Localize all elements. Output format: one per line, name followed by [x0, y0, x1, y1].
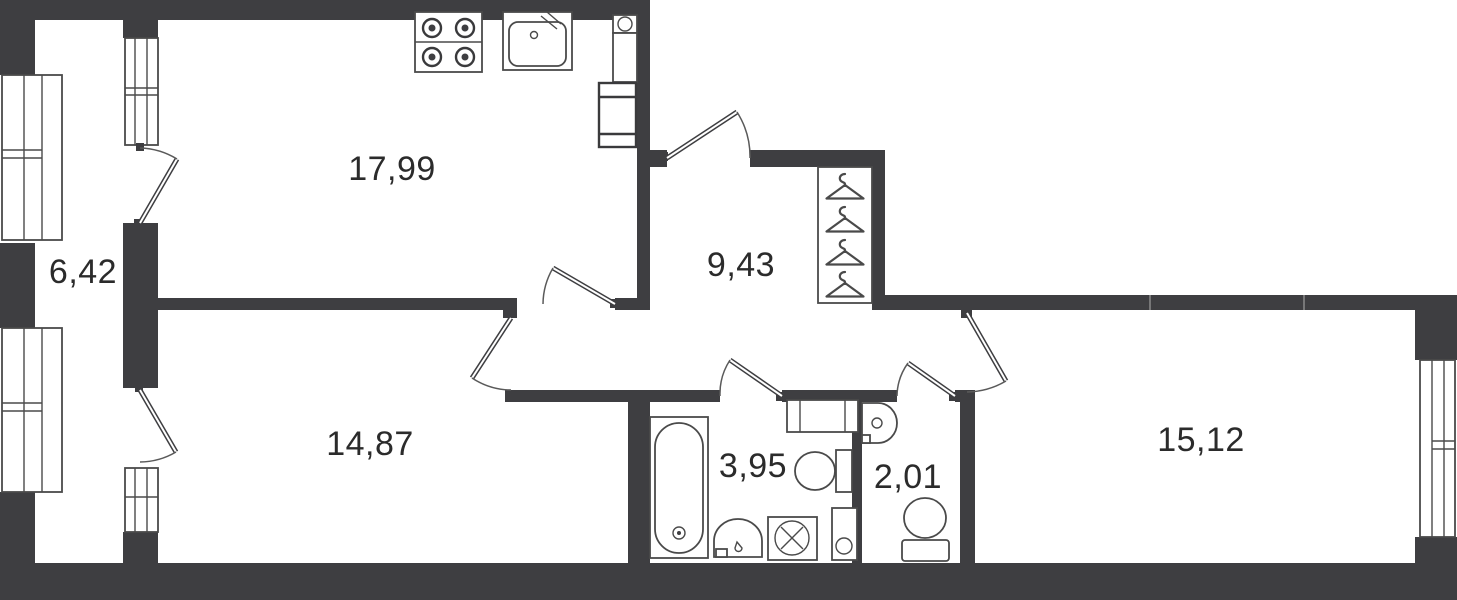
wc-toilet-icon	[902, 498, 949, 561]
wall-kitchen-right	[637, 0, 650, 310]
wall-bottom	[0, 563, 1457, 600]
wall-wardrobe-right	[872, 165, 885, 310]
balcony-window-upper-icon	[2, 75, 62, 240]
entrance-door-icon	[659, 112, 750, 161]
balcony-door-room-left-icon	[135, 384, 176, 462]
floor-plan: 17,99 6,42 9,43 14,87 3,95 2,01 15,12	[0, 0, 1457, 600]
bath-sink-icon	[714, 519, 762, 557]
stove-icon	[415, 12, 482, 72]
washing-machine-icon	[768, 517, 817, 560]
bathroom-door-icon	[720, 360, 785, 401]
label-balcony: 6,42	[49, 253, 117, 291]
label-kitchen-living: 17,99	[348, 150, 436, 188]
wc-sink-icon	[862, 403, 897, 443]
room-left-door-icon	[472, 308, 514, 390]
refrigerator-icon	[599, 83, 636, 147]
balcony-inner-window-lower-icon	[125, 468, 158, 532]
bathroom-fixtures	[650, 417, 857, 560]
bathtub-icon	[650, 417, 708, 558]
wall-right-bottom-pier	[1415, 537, 1457, 600]
walls	[0, 0, 1457, 600]
wall-wc-room-right	[960, 390, 975, 563]
bath-toilet-icon	[795, 450, 852, 492]
kitchen-sink-icon	[503, 12, 572, 70]
wall-kitchen-bottom	[158, 298, 507, 310]
label-room-right: 15,12	[1157, 421, 1245, 459]
cabinet-icon	[613, 33, 637, 82]
label-room-left: 14,87	[326, 425, 414, 463]
wall-divider-mid	[123, 223, 158, 388]
wall-kitchen-bottom-right	[615, 298, 650, 310]
balcony-door-kitchen-icon	[134, 143, 177, 227]
wall-hallway-top	[750, 150, 885, 167]
kitchen-door-icon	[543, 268, 619, 308]
room-right-door-icon	[961, 309, 1006, 392]
wardrobe	[818, 167, 872, 303]
wall-right-top-pier	[1415, 295, 1457, 360]
wall-left-mid-pier	[0, 243, 35, 328]
label-wc: 2,01	[874, 458, 942, 496]
wall-bathroom-top-left	[505, 390, 720, 402]
balcony-window-lower-icon	[2, 328, 62, 492]
floor-plan-svg: 17,99 6,42 9,43 14,87 3,95 2,01 15,12	[0, 0, 1457, 600]
wall-divider-bottom	[123, 532, 158, 563]
wall-divider-top	[123, 12, 158, 38]
vent-shaft-icon	[787, 400, 858, 432]
room-right-window-icon	[1420, 360, 1455, 537]
water-heater-icon	[832, 508, 857, 560]
kitchen-fixtures	[415, 12, 637, 147]
vent-box-icon	[613, 15, 637, 33]
label-bathroom: 3,95	[719, 447, 787, 485]
label-hallway: 9,43	[707, 246, 775, 284]
wc-door-icon	[897, 363, 958, 401]
balcony-inner-window-upper-icon	[125, 38, 158, 145]
wall-room-right-top	[872, 295, 1415, 310]
wall-left-top-pier	[0, 0, 35, 75]
wall-bathroom-left	[628, 390, 650, 563]
